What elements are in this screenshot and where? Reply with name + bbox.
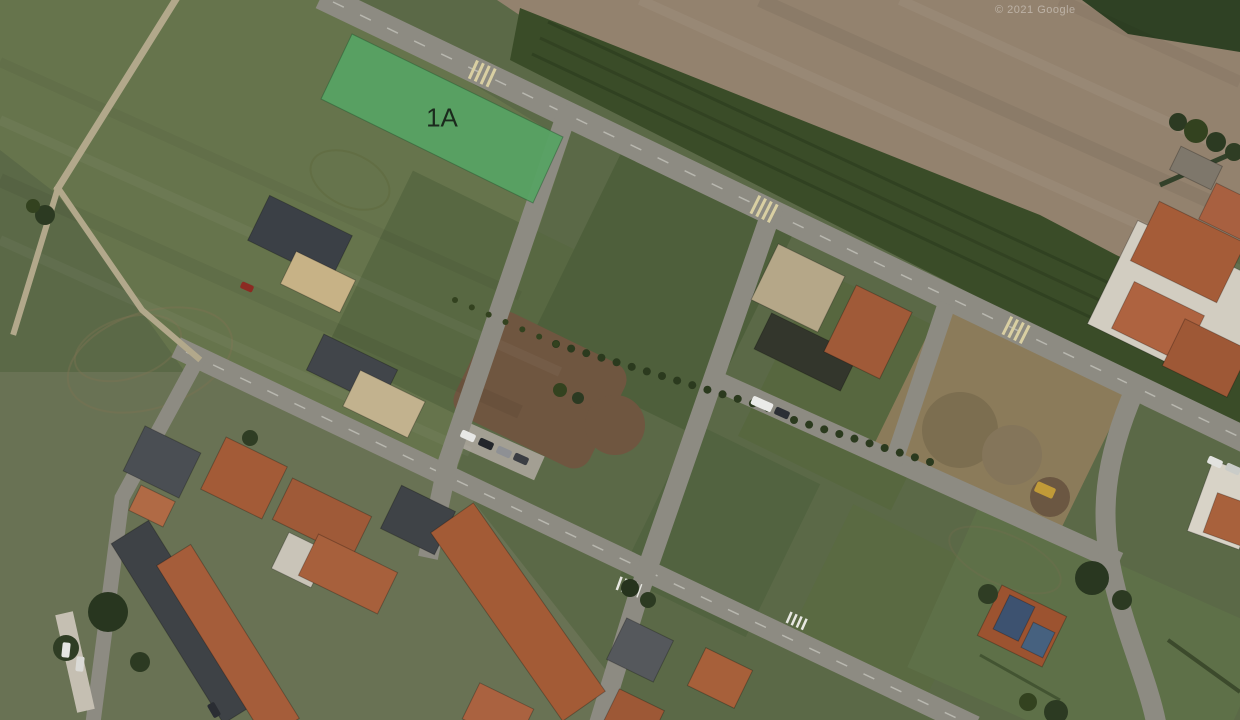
- shrub: [469, 304, 475, 310]
- shrub: [567, 345, 575, 353]
- tree: [572, 392, 584, 404]
- map-canvas: [0, 0, 1240, 720]
- dirt-patch: [982, 425, 1042, 485]
- shrub: [688, 381, 696, 389]
- tree: [242, 430, 258, 446]
- shrub: [790, 416, 798, 424]
- shrub: [926, 458, 934, 466]
- shrub: [536, 334, 542, 340]
- shrub: [452, 297, 458, 303]
- shrub: [835, 430, 843, 438]
- dirt-patch: [585, 395, 645, 455]
- tree: [1184, 119, 1208, 143]
- car: [61, 642, 71, 658]
- shrub: [703, 386, 711, 394]
- shrub: [896, 449, 904, 457]
- shrub: [911, 453, 919, 461]
- shrub: [486, 312, 492, 318]
- shrub: [658, 372, 666, 380]
- shrub: [643, 367, 651, 375]
- tree: [26, 199, 40, 213]
- tree: [1112, 590, 1132, 610]
- car: [75, 656, 85, 672]
- shrub: [582, 349, 590, 357]
- shrub: [613, 358, 621, 366]
- shrub: [628, 363, 636, 371]
- shrub: [673, 377, 681, 385]
- shrub: [519, 326, 525, 332]
- tree: [1019, 693, 1037, 711]
- tree: [88, 592, 128, 632]
- tree: [1075, 561, 1109, 595]
- tree: [553, 383, 567, 397]
- tree: [1206, 132, 1226, 152]
- shrub: [719, 390, 727, 398]
- shrub: [850, 435, 858, 443]
- tree: [130, 652, 150, 672]
- shrub: [805, 421, 813, 429]
- house-orange-5: [687, 648, 752, 709]
- shrub: [820, 425, 828, 433]
- shrub: [881, 444, 889, 452]
- shrub: [553, 341, 559, 347]
- satellite-map: 1A © 2021 Google: [0, 0, 1240, 720]
- shrub: [597, 354, 605, 362]
- tree: [621, 579, 639, 597]
- tree: [978, 584, 998, 604]
- shrub: [503, 319, 509, 325]
- shrub: [734, 395, 742, 403]
- shrub: [866, 439, 874, 447]
- tree: [640, 592, 656, 608]
- tree: [1169, 113, 1187, 131]
